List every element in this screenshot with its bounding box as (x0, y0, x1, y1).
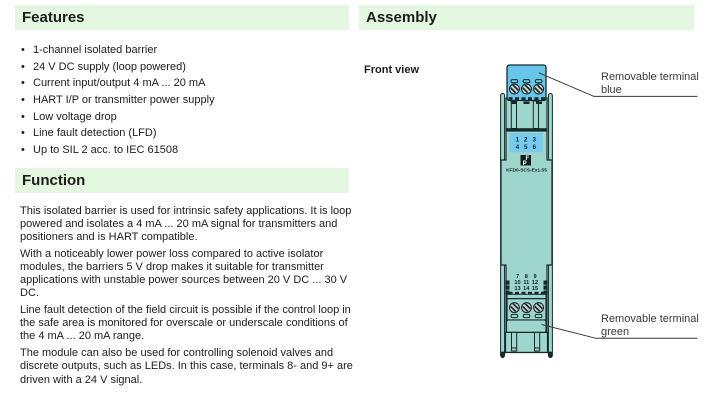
svg-text:15: 15 (532, 286, 538, 292)
svg-text:4: 4 (516, 144, 520, 151)
svg-text:6: 6 (532, 144, 536, 151)
svg-text:1: 1 (516, 137, 520, 144)
svg-text:14: 14 (523, 286, 530, 292)
svg-text:5: 5 (524, 144, 528, 151)
svg-text:KFD0-SCS-Ex1.55: KFD0-SCS-Ex1.55 (506, 168, 547, 174)
svg-text:13: 13 (514, 286, 520, 292)
svg-text:P: P (523, 161, 527, 167)
svg-text:2: 2 (524, 137, 528, 144)
svg-text:3: 3 (532, 137, 536, 144)
